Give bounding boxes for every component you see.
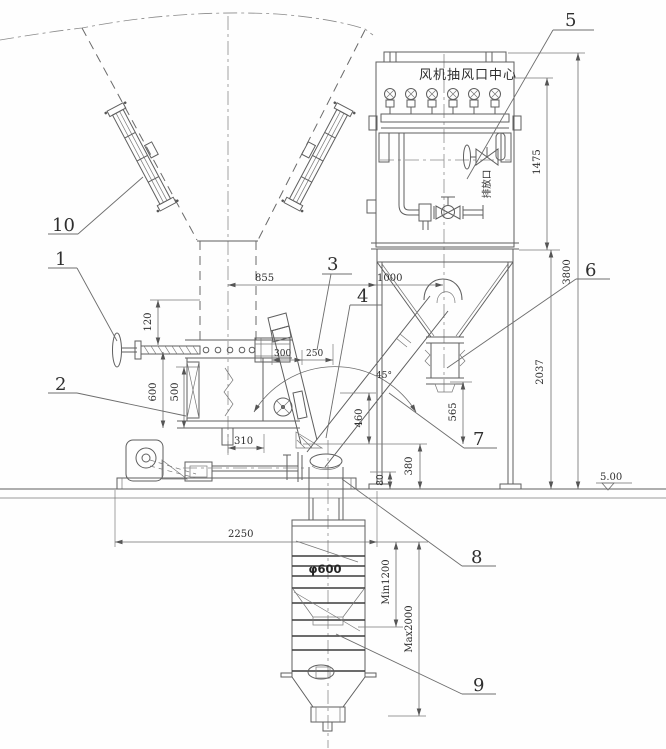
drain-port-label: 排放口	[481, 170, 493, 199]
chute-top-flange	[292, 520, 365, 526]
dim-3800: 3800	[562, 259, 573, 284]
dim-250: 250	[306, 349, 323, 359]
slide-gate-valve	[113, 333, 293, 367]
dim-120: 120	[143, 312, 154, 331]
base-frame	[117, 478, 356, 489]
svg-text:4: 4	[357, 286, 368, 307]
handwheel	[113, 333, 122, 367]
valve-manifold	[381, 114, 509, 122]
dim-1475: 1475	[532, 149, 543, 174]
dim-500: 500	[170, 382, 181, 401]
callouts: 10 1 2 3 4 5 6	[48, 10, 610, 696]
svg-text:5: 5	[565, 10, 576, 31]
callout-2: 2	[48, 374, 186, 416]
dim-2037: 2037	[535, 359, 546, 384]
svg-text:2: 2	[55, 374, 66, 395]
svg-text:6: 6	[585, 260, 596, 281]
dim-300: 300	[274, 349, 291, 359]
drive-unit	[117, 440, 356, 489]
dim-level: 5.00	[600, 472, 622, 483]
bin-vibrator-rail-left	[104, 99, 182, 213]
callout-5: 5	[467, 10, 594, 179]
hopper-outlet	[425, 337, 465, 392]
dim-600: 600	[148, 382, 159, 401]
drain-valve	[464, 133, 506, 169]
callout-7: 7	[389, 393, 497, 450]
dim-max2000: Max2000	[404, 605, 415, 652]
svg-text:3: 3	[327, 254, 338, 275]
svg-text:10: 10	[52, 215, 75, 236]
telescopic-chute: φ600	[281, 498, 376, 731]
pulse-air-piping	[399, 133, 483, 230]
elevation-marker: 5.00	[596, 472, 632, 490]
callout-10: 10	[48, 177, 143, 236]
callout-1: 1	[48, 249, 117, 341]
svg-text:1: 1	[55, 249, 66, 270]
flap-valve-plates	[224, 368, 233, 416]
pulse-valves	[385, 89, 501, 115]
dim-310: 310	[234, 436, 253, 447]
chamber-stub	[222, 428, 233, 445]
ground	[0, 489, 666, 498]
dust-collector-box: 风机抽风口中心	[367, 52, 521, 249]
callout-6: 6	[447, 260, 610, 368]
svg-text:9: 9	[473, 675, 484, 696]
dim-45: 45°	[376, 371, 392, 381]
svg-text:7: 7	[473, 429, 484, 450]
fan-suction-center-label: 风机抽风口中心	[419, 68, 517, 83]
motor	[126, 440, 163, 481]
dim-2250: 2250	[228, 529, 253, 540]
dim-1000: 1000	[377, 273, 402, 284]
dim-min1200: Min1200	[381, 559, 392, 604]
gate-rollers	[203, 347, 255, 353]
dim-460: 460	[354, 408, 365, 427]
dimensions: 855 1000 120 600 500 310 300 250 45° 460	[115, 53, 632, 716]
bin-break-line	[0, 13, 373, 40]
svg-text:8: 8	[471, 547, 482, 568]
callout-9: 9	[336, 634, 496, 696]
chute-diameter-label: φ600	[308, 562, 341, 576]
dim-565: 565	[448, 402, 459, 421]
bin-vibrator-rail-right	[278, 99, 356, 213]
drain-handwheel	[464, 145, 471, 169]
storage-bin-funnel	[0, 13, 373, 340]
discharge-chamber	[177, 358, 300, 445]
dim-80: 80	[376, 474, 386, 486]
callout-3: 3	[317, 254, 352, 350]
engineering-drawing-page: 风机抽风口中心	[0, 0, 666, 749]
dim-380: 380	[404, 456, 415, 475]
dim-855: 855	[255, 273, 274, 284]
screw-rod	[141, 346, 200, 354]
technical-drawing: 风机抽风口中心	[0, 0, 666, 749]
